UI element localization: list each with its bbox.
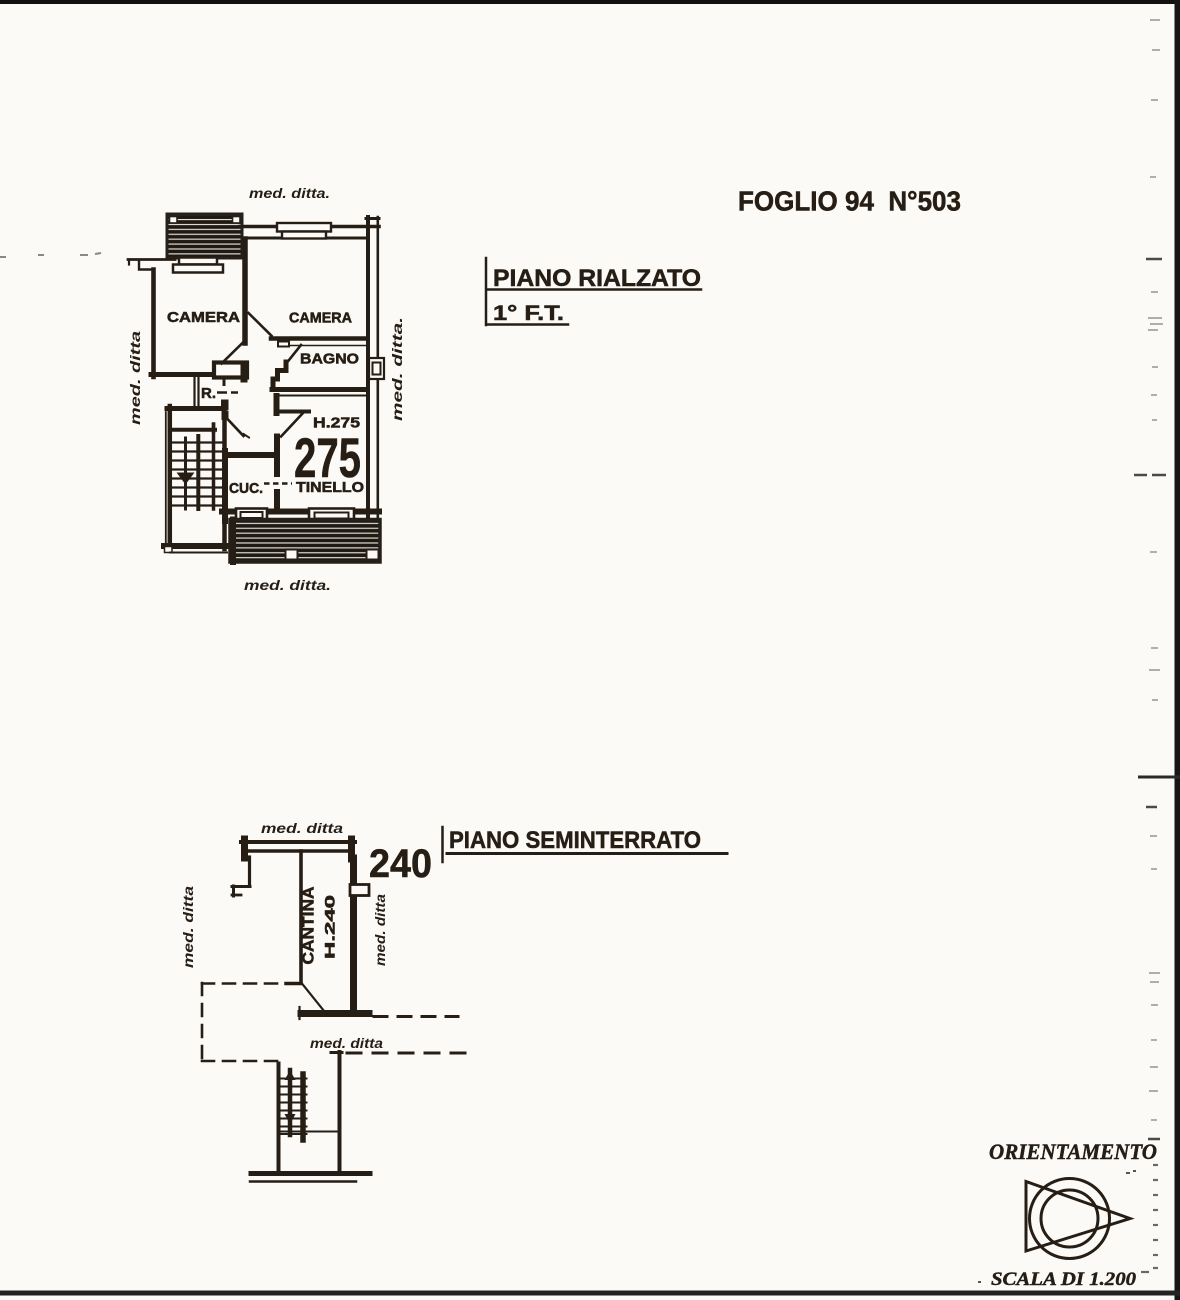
svg-text:med. ditta.: med. ditta. [389,317,405,421]
svg-text:CAMERA: CAMERA [167,310,241,326]
svg-text:ORIENTAMENTO: ORIENTAMENTO [989,1139,1157,1164]
svg-text:med. ditta: med. ditta [127,331,143,425]
svg-text:PIANO RIALZATO: PIANO RIALZATO [493,265,701,292]
svg-text:med. ditta: med. ditta [372,894,388,966]
svg-text:H.240: H.240 [322,895,338,959]
svg-text:TINELLO: TINELLO [296,480,364,496]
svg-text:med. ditta: med. ditta [310,1035,383,1051]
svg-text:med. ditta: med. ditta [180,886,196,968]
svg-text:CANTINA: CANTINA [301,887,318,965]
svg-text:med. ditta: med. ditta [261,820,343,836]
svg-text:SCALA DI 1.200: SCALA DI 1.200 [991,1269,1137,1290]
svg-text:240: 240 [369,842,432,886]
svg-text:CAMERA: CAMERA [289,311,353,327]
svg-text:FOGLIO 94 N°503: FOGLIO 94 N°503 [738,186,961,217]
svg-text:BAGNO: BAGNO [300,352,359,368]
svg-text:med. ditta.: med. ditta. [249,185,330,201]
svg-text:med. ditta.: med. ditta. [244,577,331,593]
svg-text:R.: R. [201,385,216,402]
svg-text:PIANO SEMINTERRATO: PIANO SEMINTERRATO [449,827,701,854]
svg-text:1° F.T.: 1° F.T. [493,302,564,325]
svg-text:CUC.: CUC. [229,481,263,497]
